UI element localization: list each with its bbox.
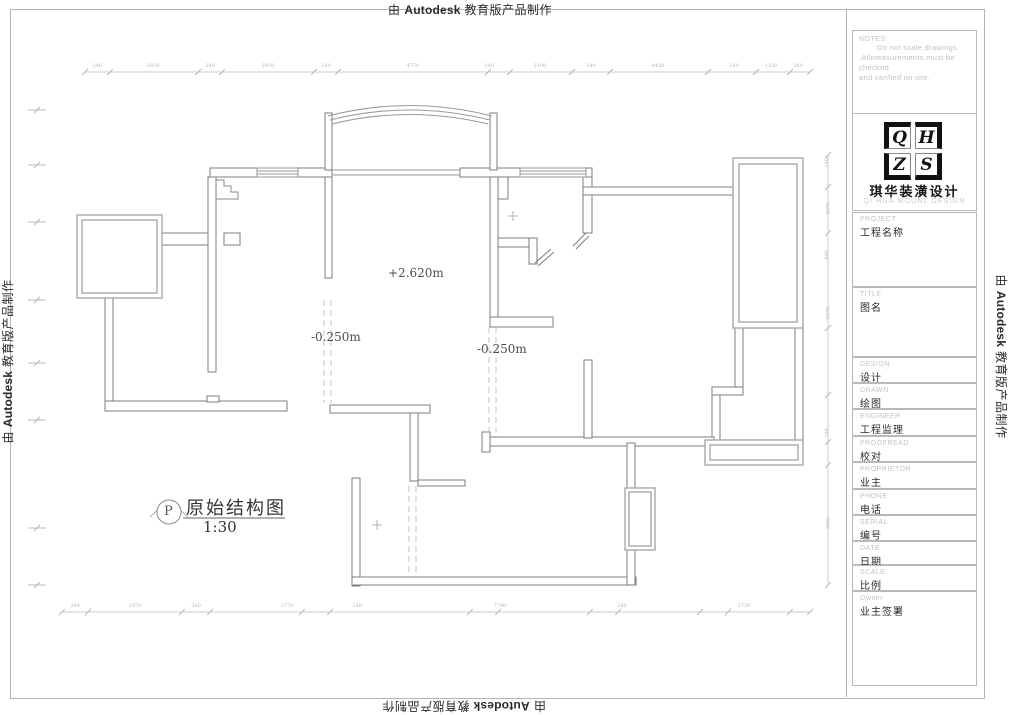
field-label: PHONE — [853, 490, 976, 500]
field-value: 业主 — [853, 473, 976, 489]
field-label: TITLE — [853, 288, 976, 298]
dimension-label: 240 — [586, 63, 596, 69]
field-scale: SCALE 比例 — [852, 565, 977, 591]
field-value: 图名 — [853, 298, 976, 314]
dimension-label: 240 — [793, 63, 803, 69]
field-serial: SERIAL 编号 — [852, 515, 977, 541]
dimension-label: 240 — [70, 603, 80, 609]
field-label: DRAWN — [853, 384, 976, 394]
field-value: 设计 — [853, 368, 976, 384]
level-label-center: +2.620m — [388, 266, 444, 280]
field-title: TITLE 图名 — [852, 287, 977, 357]
field-proofread: PROOFREAD 校对 — [852, 436, 977, 462]
field-value: 绘图 — [853, 394, 976, 410]
logo-letter: S — [915, 153, 942, 180]
field-engineer: ENGINEER 工程监理 — [852, 409, 977, 436]
field-label: PROOFREAD — [853, 437, 976, 447]
field-value: 工程名称 — [853, 223, 976, 239]
dimension-label: 3370 — [825, 307, 831, 320]
level-label-right: -0.250m — [477, 342, 527, 356]
field-project: PROJECT 工程名称 — [852, 212, 977, 287]
dimension-label: 2190 — [534, 63, 547, 69]
dimension-label: 240 — [321, 63, 331, 69]
notes-line: Do not scale drawings — [853, 43, 976, 53]
field-label: SERIAL — [853, 516, 976, 526]
title-block-divider — [846, 9, 847, 697]
drawing-sheet: 由 Autodesk 教育版产品制作 由 Autodesk 教育版产品制作 由 … — [0, 0, 1010, 715]
field-label: ENGINEER — [853, 410, 976, 420]
field-label: PROJECT — [853, 213, 976, 223]
field-value: 校对 — [853, 447, 976, 463]
dimension-label: 3075 — [825, 202, 831, 215]
field-label: DESIGN — [853, 358, 976, 368]
notes-line: ,Allmeasurements must be checked — [853, 53, 976, 73]
dimension-label: 4770 — [407, 63, 420, 69]
field-label: Owner — [853, 592, 976, 602]
field-value: 业主签署 — [853, 602, 976, 618]
dimension-label: 240 — [205, 63, 215, 69]
dimension-lines-group — [28, 69, 831, 615]
watermark-right: 由 Autodesk 教育版产品制作 — [993, 239, 1010, 474]
dimension-label: 240 — [617, 603, 627, 609]
dimension-label: 2970 — [129, 603, 142, 609]
company-name-en: QI HUA MOUNL DESIGN — [852, 198, 977, 205]
windows-group — [257, 106, 586, 178]
field-owner: Owner 业主签署 — [852, 591, 977, 686]
company-logo: Q H Z S — [884, 122, 942, 180]
field-proprietor: PROPRIETOR 业主 — [852, 462, 977, 489]
dimension-label: 240 — [824, 158, 830, 168]
logo-letter: Q — [884, 122, 911, 149]
notes-box: NOTES: Do not scale drawings ,Allmeasure… — [852, 30, 977, 114]
dimension-label: 840 — [824, 250, 830, 260]
field-design: DESIGN 设计 — [852, 357, 977, 383]
field-label: DATE — [853, 542, 976, 552]
door-leaves-group — [535, 233, 589, 266]
dimension-label: 3045 — [825, 517, 831, 530]
dimension-label: 4450 — [652, 63, 665, 69]
level-label-left: -0.250m — [311, 330, 361, 344]
plan-title: 原始结构图 — [186, 494, 286, 520]
dimension-label: 240 — [729, 63, 739, 69]
dimension-label: 240 — [191, 603, 201, 609]
dimension-label: 240 — [484, 63, 494, 69]
dimension-label: 1730 — [738, 603, 751, 609]
notes-line: and varified on site. — [853, 73, 976, 83]
notes-label: NOTES: — [853, 31, 976, 43]
balcony-group — [77, 158, 803, 550]
dimension-label: 2970 — [147, 63, 160, 69]
plan-scale: 1:30 — [203, 518, 237, 536]
field-date: DATE 日期 — [852, 541, 977, 565]
stairs-icon — [216, 180, 238, 199]
plan-symbol-letter: P — [164, 504, 173, 519]
dimension-label: 2970 — [262, 63, 275, 69]
field-value: 比例 — [853, 576, 976, 592]
dimension-label: 240 — [824, 428, 830, 438]
field-value: 工程监理 — [853, 420, 976, 436]
field-label: PROPRIETOR — [853, 463, 976, 473]
field-value: 编号 — [853, 526, 976, 542]
field-phone: PHONE 电话 — [852, 489, 977, 515]
field-label: SCALE — [853, 566, 976, 576]
field-drawn: DRAWN 绘图 — [852, 383, 977, 409]
field-value: 电话 — [853, 500, 976, 516]
dimension-label: 3770 — [281, 603, 294, 609]
logo-letter: Z — [884, 153, 911, 180]
floor-plan — [0, 0, 845, 715]
logo-letter: H — [915, 122, 942, 149]
dimension-label: 240 — [92, 63, 102, 69]
dimension-label: 1330 — [765, 63, 778, 69]
dimension-label: 7790 — [494, 603, 507, 609]
dimension-label: 240 — [352, 603, 362, 609]
